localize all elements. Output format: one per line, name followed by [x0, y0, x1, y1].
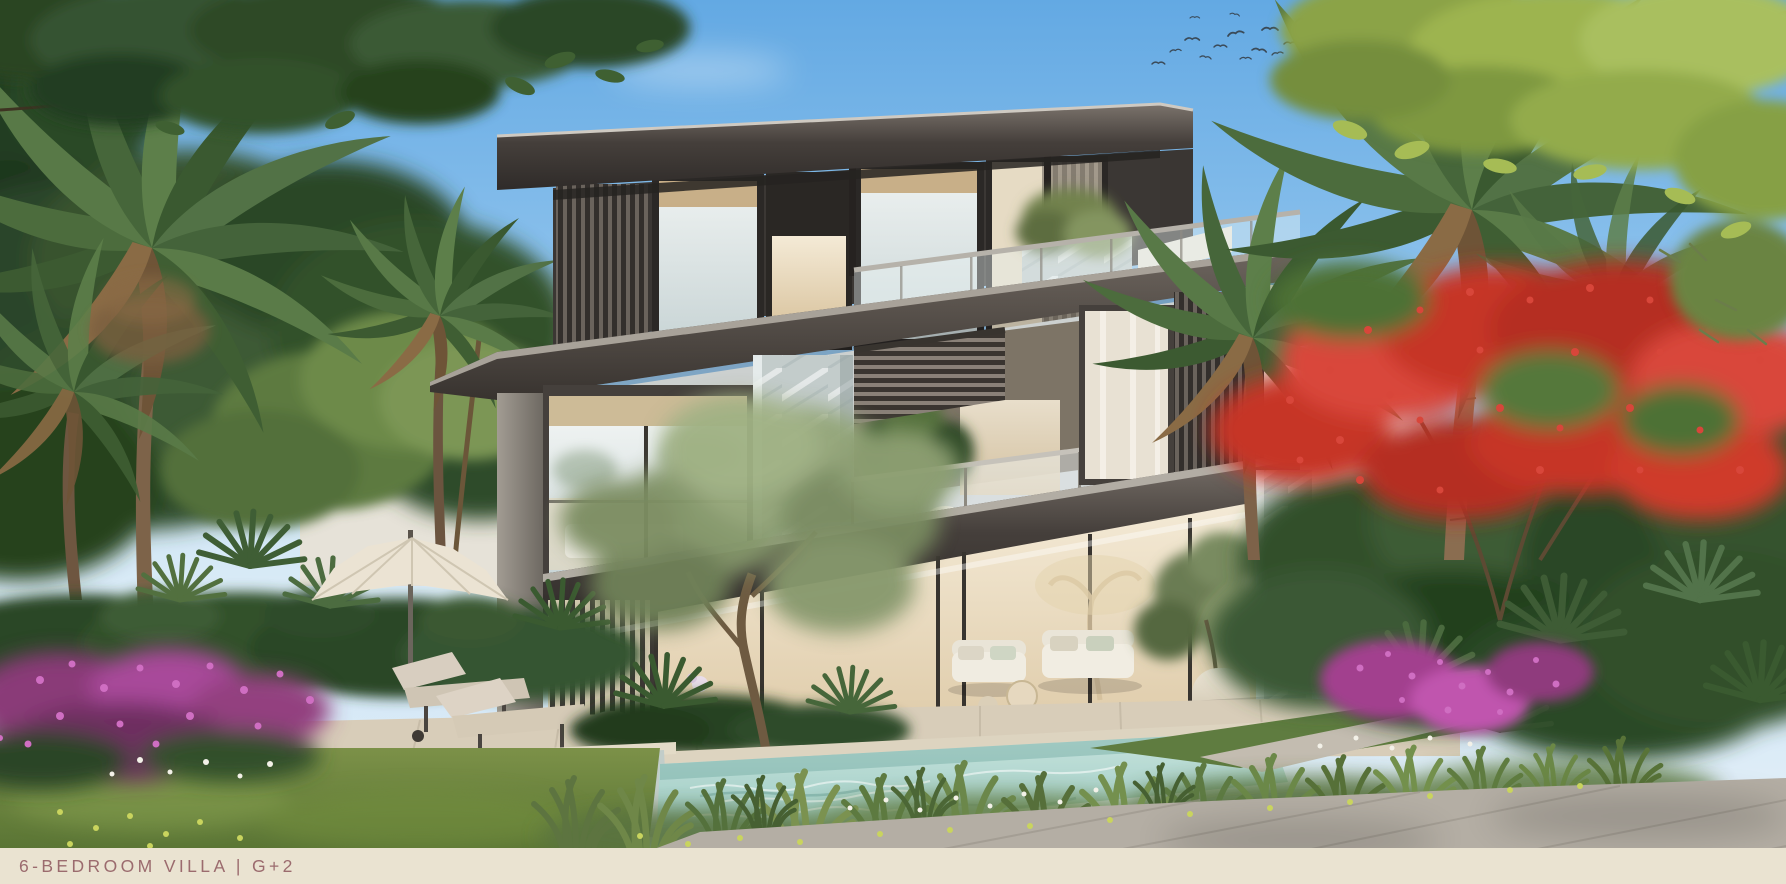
caption-text: 6-BEDROOM VILLA | G+2	[19, 856, 296, 877]
first-floor-window-right	[1079, 305, 1174, 485]
villa-rendering-page: 6-BEDROOM VILLA | G+2	[0, 0, 1786, 884]
villa-rendering-scene	[0, 0, 1786, 884]
caption-bar: 6-BEDROOM VILLA | G+2	[0, 848, 1786, 884]
